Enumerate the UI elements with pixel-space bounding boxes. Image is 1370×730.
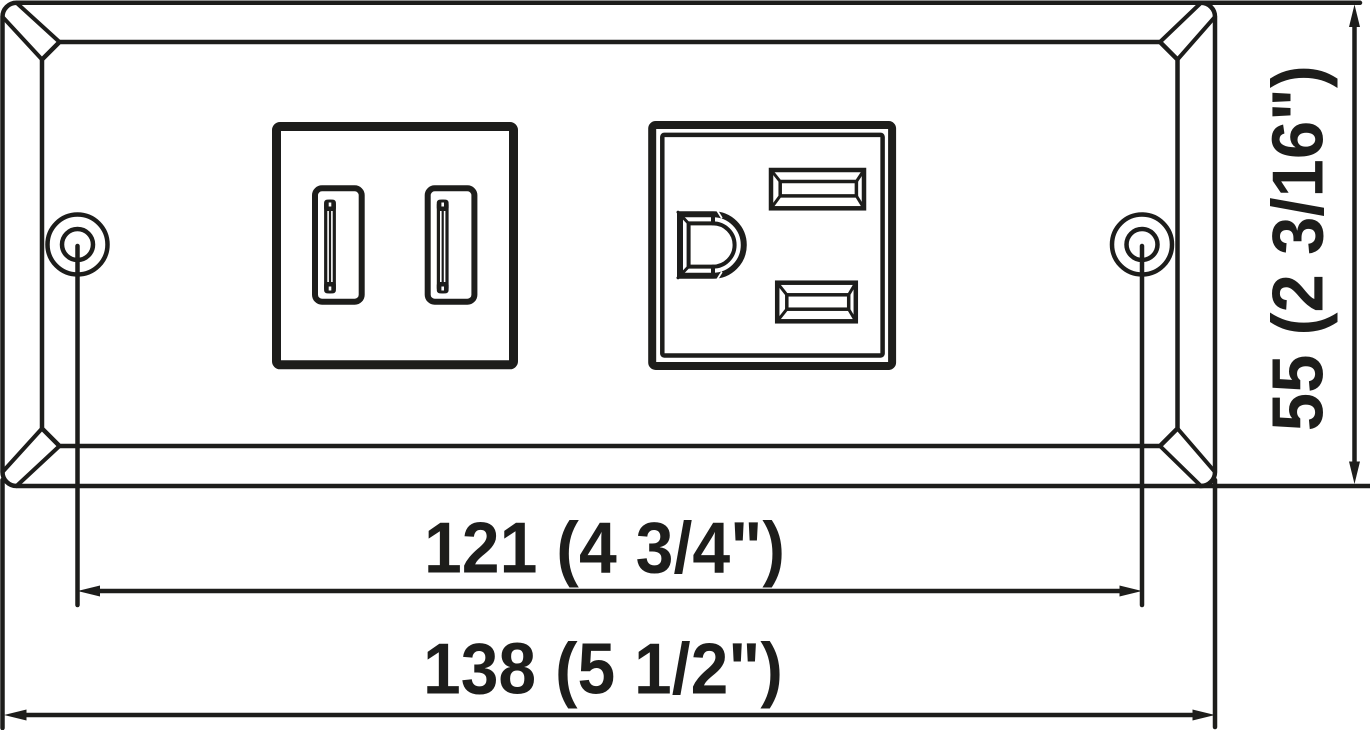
svg-text:138 (5 1/2"): 138 (5 1/2") xyxy=(423,629,783,710)
svg-text:55 (2 3/16"): 55 (2 3/16") xyxy=(1257,65,1338,431)
svg-text:121 (4 3/4"): 121 (4 3/4") xyxy=(424,508,785,589)
